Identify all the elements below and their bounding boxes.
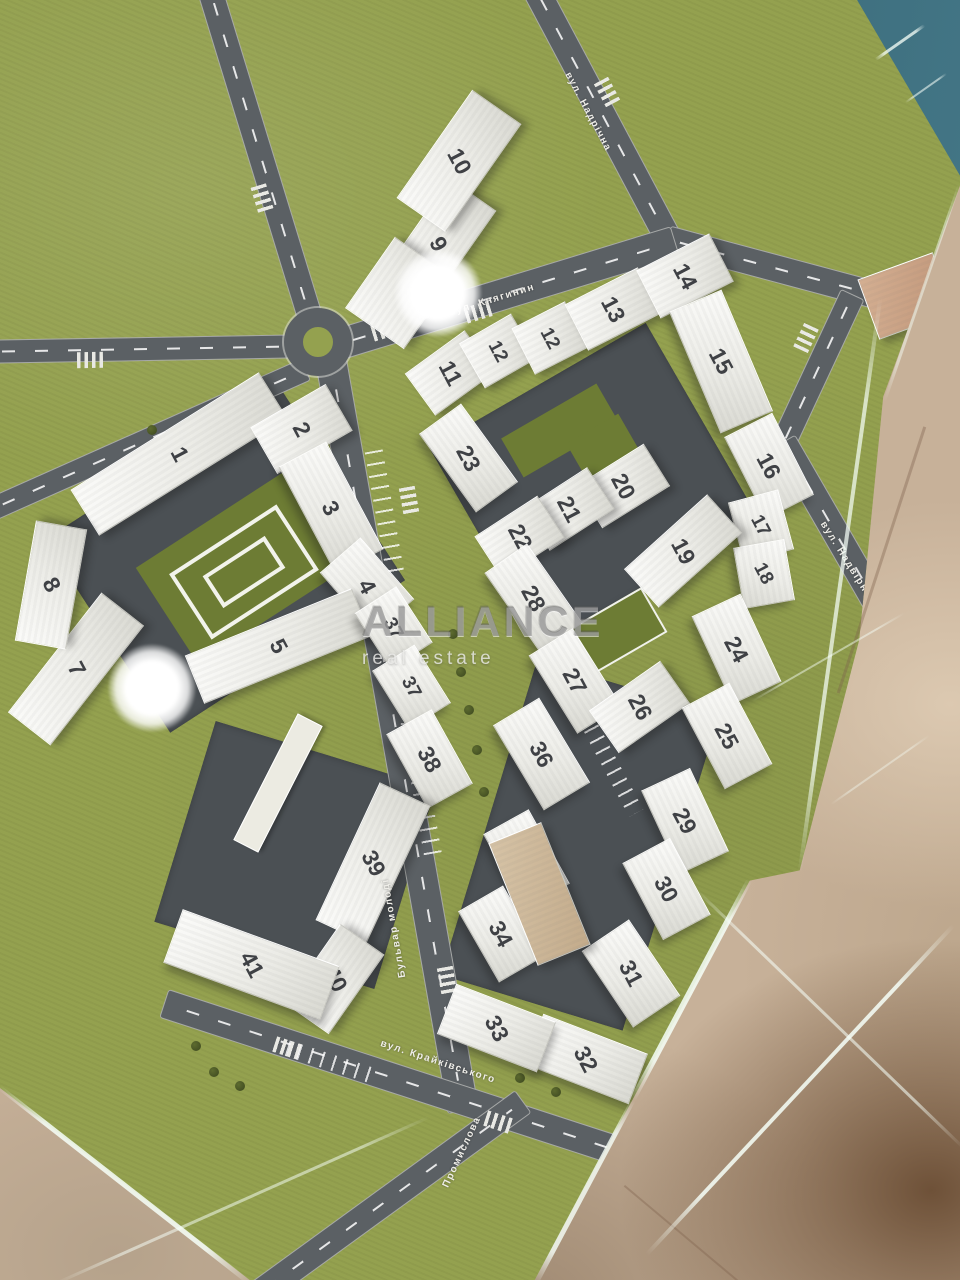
tree	[515, 1073, 525, 1083]
building-number: 5	[265, 635, 291, 657]
building-number: 36	[525, 737, 557, 770]
road-segment	[522, 0, 681, 248]
building-number: 19	[667, 534, 699, 567]
crosswalk	[77, 352, 103, 368]
building-number: 3	[318, 497, 344, 519]
building-number: 34	[485, 917, 517, 950]
road-segment	[0, 334, 303, 363]
building-number: 33	[480, 1011, 512, 1044]
building-number: 8	[38, 574, 64, 596]
roundabout	[284, 308, 352, 376]
building-number: 28	[517, 581, 549, 614]
tree	[456, 667, 466, 677]
road-center-dashes	[784, 301, 850, 440]
building-number: 16	[753, 449, 785, 482]
building-number: 18	[751, 560, 778, 588]
photo: 1234578910111212131415161718192021222328…	[0, 0, 960, 1280]
building-number: 4	[354, 575, 380, 597]
tree	[448, 629, 458, 639]
building-number: 39	[357, 846, 389, 879]
building-24: 24	[691, 594, 781, 705]
building-number: 14	[669, 259, 701, 292]
building-number: 26	[623, 690, 655, 723]
road-segment	[770, 289, 864, 451]
road-center-dashes	[539, 0, 664, 231]
tree	[479, 787, 489, 797]
building-number: 27	[559, 664, 591, 697]
tree	[209, 1067, 219, 1077]
building-number: 2	[288, 418, 314, 440]
building-number: 32	[570, 1042, 602, 1075]
building-number: 31	[615, 956, 647, 989]
building-number: 20	[607, 469, 639, 502]
building-number: 9	[425, 233, 451, 255]
building-10: 10	[397, 90, 522, 233]
marble-vein	[624, 1185, 778, 1280]
road-segment	[197, 0, 325, 329]
model-board: 1234578910111212131415161718192021222328…	[0, 0, 960, 1280]
building-number: 10	[443, 144, 475, 177]
building-number: 12	[485, 337, 512, 365]
building-number: 41	[235, 947, 267, 980]
tree	[472, 745, 482, 755]
building-number: 24	[720, 632, 752, 665]
building-number: 37	[380, 614, 407, 642]
building-number: 7	[63, 658, 89, 680]
tree	[235, 1081, 245, 1091]
building-block	[857, 252, 954, 340]
building-number: 25	[711, 719, 743, 752]
tree	[191, 1041, 201, 1051]
building-number: 1	[166, 443, 192, 465]
tree	[464, 705, 474, 715]
glass-reflection	[693, 887, 960, 1150]
building-number: 21	[552, 492, 584, 525]
building-number: 30	[650, 872, 682, 905]
building-number: 37	[398, 673, 425, 701]
building-number: 13	[597, 292, 629, 325]
glass-reflection	[830, 735, 929, 805]
road-center-dashes	[213, 3, 310, 312]
building-number: 29	[669, 804, 701, 837]
building-number: 38	[413, 742, 445, 775]
building-number: 11	[434, 357, 466, 389]
building-number: 23	[452, 441, 484, 474]
crosswalk	[399, 486, 419, 514]
tree	[147, 425, 157, 435]
road-center-dashes	[2, 345, 289, 353]
building-number: 15	[705, 344, 737, 377]
building-number: 17	[748, 512, 775, 540]
tree	[551, 1087, 561, 1097]
building-number: 12	[537, 324, 564, 352]
